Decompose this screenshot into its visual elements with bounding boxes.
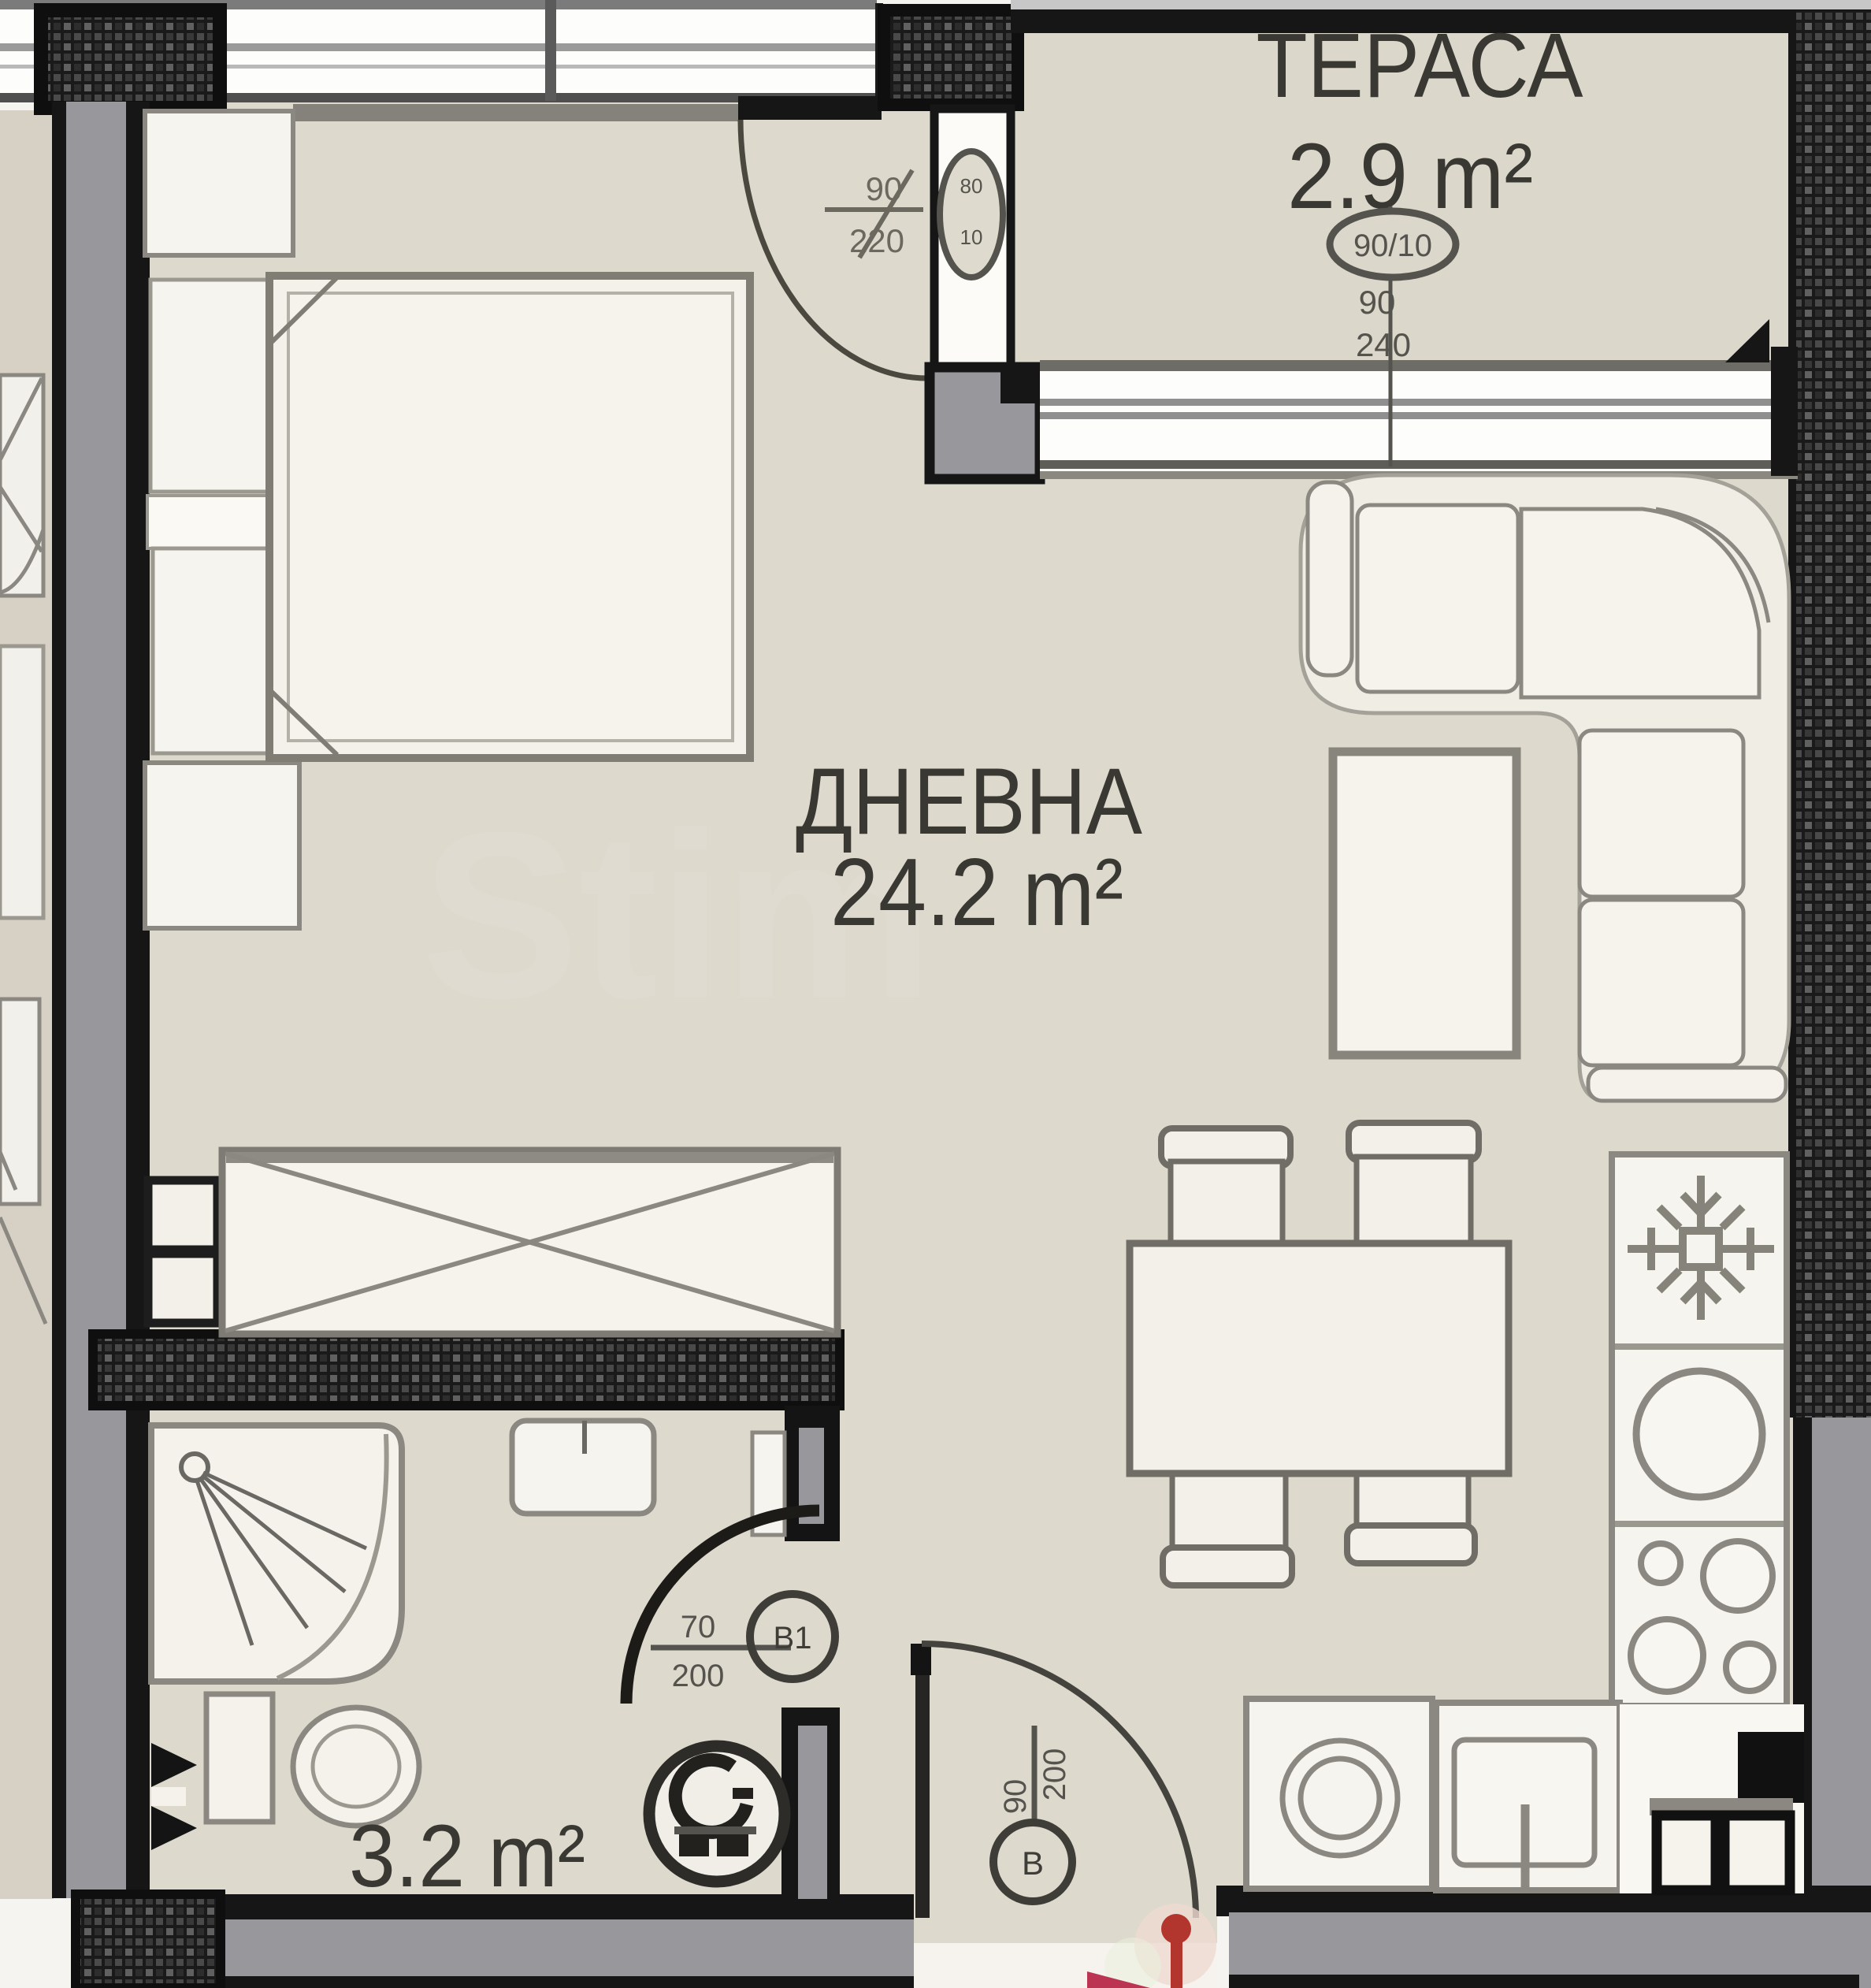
svg-text:200: 200 xyxy=(672,1659,725,1693)
svg-text:90: 90 xyxy=(866,170,903,207)
svg-text:70: 70 xyxy=(681,1610,716,1644)
svg-text:24.2 m²: 24.2 m² xyxy=(830,838,1123,946)
svg-text:200: 200 xyxy=(1038,1748,1072,1801)
svg-text:80: 80 xyxy=(960,174,983,198)
svg-text:3.2 m²: 3.2 m² xyxy=(349,1807,585,1905)
svg-text:B1: B1 xyxy=(774,1621,812,1655)
svg-text:ТЕРАСА: ТЕРАСА xyxy=(1257,14,1584,117)
svg-text:B: B xyxy=(1022,1845,1044,1882)
svg-text:90: 90 xyxy=(1359,284,1396,321)
svg-text:90: 90 xyxy=(998,1779,1033,1815)
svg-text:10: 10 xyxy=(960,225,983,249)
svg-text:240: 240 xyxy=(1356,326,1411,363)
svg-text:220: 220 xyxy=(849,222,904,259)
svg-text:90/10: 90/10 xyxy=(1353,229,1432,263)
